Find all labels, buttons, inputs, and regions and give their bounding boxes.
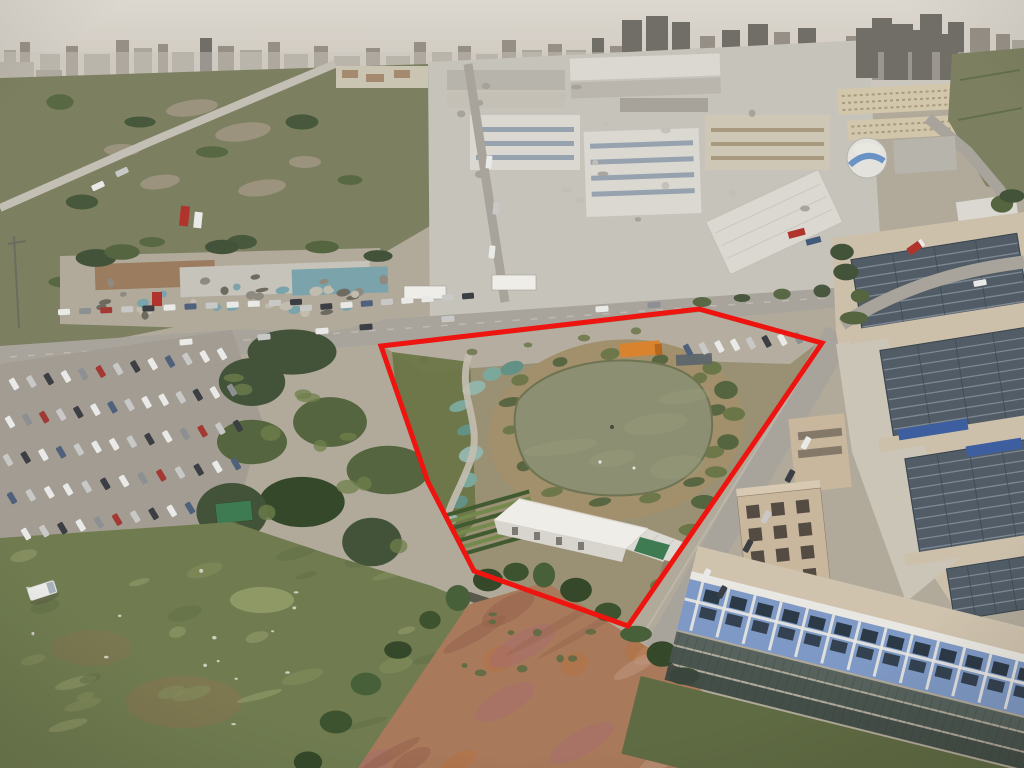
photo-vignette [0,0,1024,768]
aerial-photo [0,0,1024,768]
aerial-photo-canvas [0,0,1024,768]
